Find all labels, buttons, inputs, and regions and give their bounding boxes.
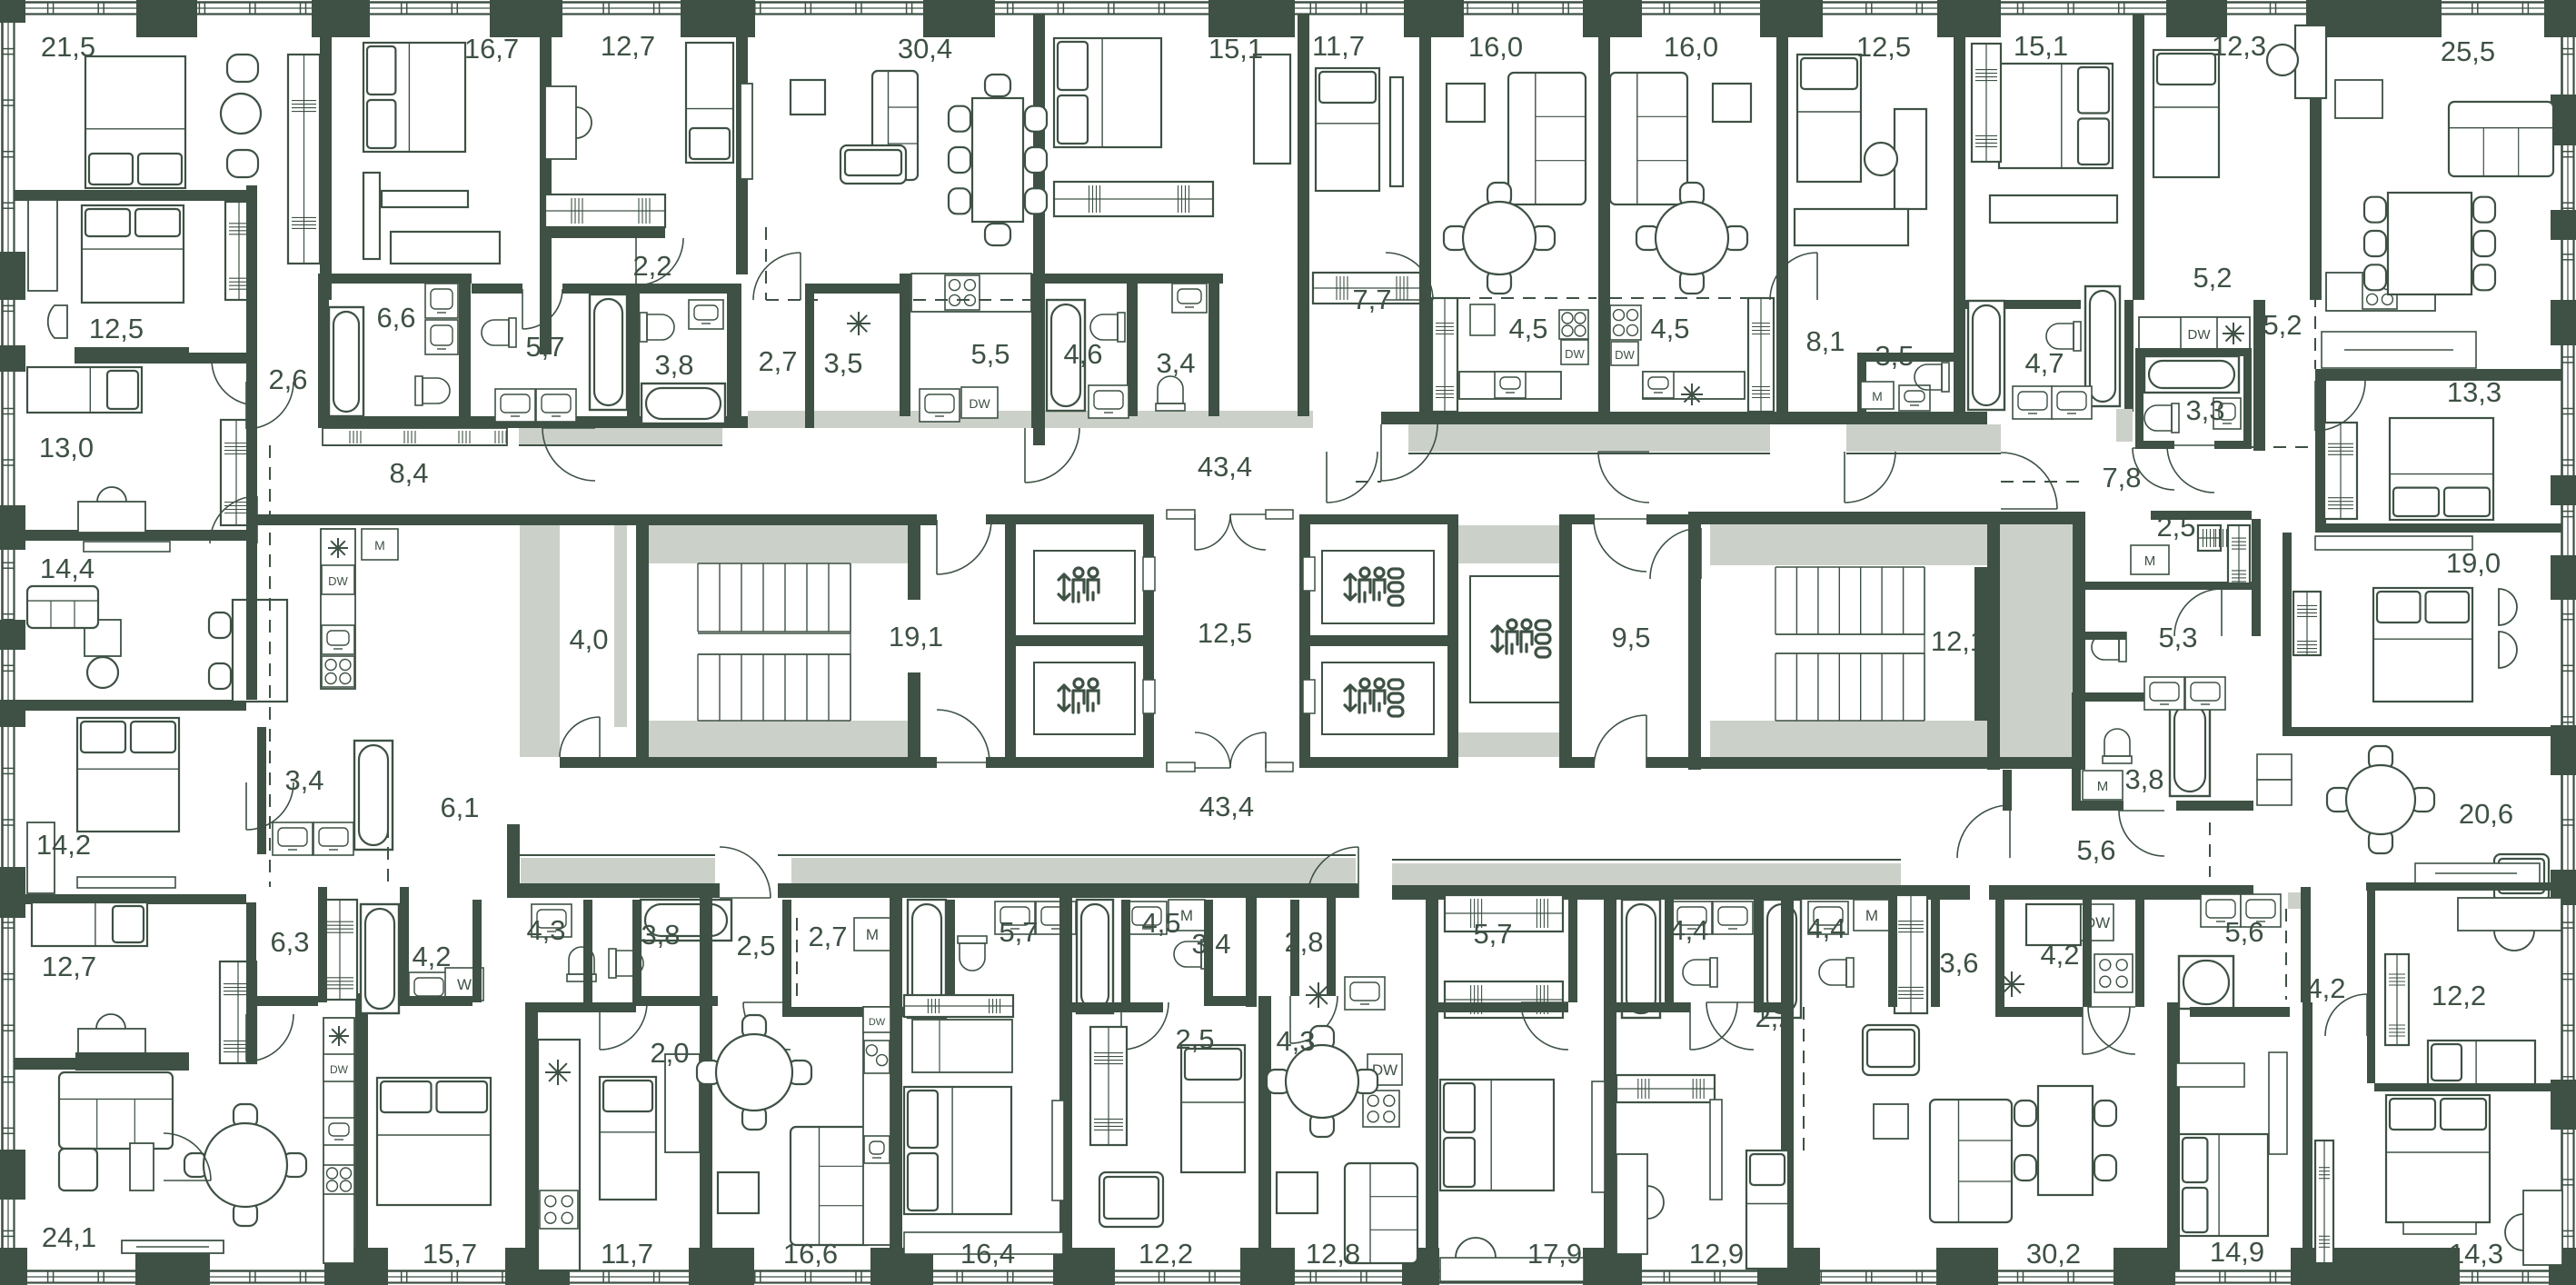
svg-text:13,0: 13,0 [39, 432, 94, 463]
svg-text:4,2: 4,2 [412, 941, 451, 972]
svg-text:3,8: 3,8 [641, 919, 680, 951]
svg-text:2,5: 2,5 [736, 930, 775, 961]
svg-text:M: M [2144, 553, 2156, 569]
svg-text:2,7: 2,7 [758, 345, 797, 377]
svg-text:3,4: 3,4 [284, 764, 323, 796]
svg-text:30,4: 30,4 [898, 33, 952, 65]
svg-text:3,8: 3,8 [2124, 763, 2163, 795]
svg-text:3,5: 3,5 [823, 347, 862, 379]
svg-text:DW: DW [2188, 327, 2212, 343]
svg-text:16,0: 16,0 [1468, 31, 1523, 63]
svg-text:8,1: 8,1 [1805, 325, 1845, 357]
svg-text:12,1: 12,1 [1931, 625, 1985, 657]
svg-text:3,6: 3,6 [1939, 947, 1978, 979]
svg-text:4,3: 4,3 [526, 914, 565, 946]
svg-text:M: M [1872, 389, 1883, 403]
svg-text:2,5: 2,5 [2156, 511, 2195, 543]
svg-text:6,6: 6,6 [376, 302, 415, 334]
svg-text:5,7: 5,7 [1473, 918, 1512, 950]
svg-text:12,5: 12,5 [89, 313, 144, 344]
svg-text:14,9: 14,9 [2210, 1236, 2264, 1268]
svg-text:12,7: 12,7 [601, 30, 655, 62]
svg-text:21,5: 21,5 [41, 31, 95, 63]
svg-text:M: M [374, 538, 385, 553]
svg-text:DW: DW [869, 1017, 886, 1028]
svg-text:4,5: 4,5 [1508, 313, 1547, 344]
svg-text:DW: DW [330, 1063, 349, 1076]
svg-text:4,2: 4,2 [2040, 939, 2079, 971]
svg-text:30,2: 30,2 [2026, 1238, 2081, 1270]
svg-text:4,4: 4,4 [1806, 912, 1845, 944]
svg-text:5,6: 5,6 [2076, 834, 2115, 866]
svg-text:3,4: 3,4 [1191, 928, 1230, 960]
svg-text:M: M [2097, 779, 2109, 794]
svg-text:7,7: 7,7 [1352, 284, 1391, 315]
svg-text:3,4: 3,4 [1156, 347, 1195, 379]
svg-text:5,2: 5,2 [2193, 262, 2232, 294]
svg-text:2,6: 2,6 [268, 364, 307, 395]
svg-text:12,5: 12,5 [1856, 31, 1911, 63]
svg-text:43,4: 43,4 [1198, 451, 1252, 483]
svg-text:4,5: 4,5 [1650, 313, 1689, 344]
svg-text:12,5: 12,5 [1198, 617, 1252, 649]
svg-text:2,5: 2,5 [1175, 1023, 1214, 1055]
svg-text:15,1: 15,1 [1208, 33, 1263, 65]
svg-text:DW: DW [969, 396, 990, 411]
svg-text:12,8: 12,8 [1306, 1238, 1360, 1270]
svg-text:2,2: 2,2 [632, 250, 671, 282]
svg-text:4,4: 4,4 [1669, 914, 1708, 946]
svg-text:17,9: 17,9 [1527, 1238, 1582, 1270]
svg-text:19,0: 19,0 [2446, 547, 2501, 579]
svg-text:M: M [1180, 907, 1193, 924]
svg-text:19,1: 19,1 [889, 621, 943, 652]
svg-text:4,7: 4,7 [2024, 347, 2064, 379]
svg-text:15,7: 15,7 [423, 1238, 477, 1270]
svg-text:5,5: 5,5 [970, 338, 1010, 370]
svg-text:24,1: 24,1 [42, 1221, 96, 1253]
svg-text:2,0: 2,0 [650, 1037, 689, 1069]
svg-text:6,1: 6,1 [440, 792, 479, 823]
svg-text:4,2: 4,2 [2306, 972, 2345, 1004]
svg-text:16,4: 16,4 [960, 1238, 1015, 1270]
svg-text:12,7: 12,7 [42, 951, 96, 982]
svg-text:4,6: 4,6 [1063, 338, 1102, 370]
svg-text:6,3: 6,3 [270, 926, 309, 958]
svg-text:20,6: 20,6 [2459, 798, 2513, 830]
svg-text:11,7: 11,7 [601, 1238, 653, 1270]
svg-text:4,5: 4,5 [1141, 907, 1180, 939]
svg-text:2,8: 2,8 [1284, 926, 1323, 958]
svg-text:16,7: 16,7 [464, 33, 519, 65]
svg-text:W: W [457, 976, 472, 993]
svg-text:16,6: 16,6 [783, 1238, 838, 1270]
svg-text:5,7: 5,7 [525, 331, 564, 363]
svg-text:2,2: 2,2 [1755, 1001, 1794, 1033]
svg-text:9,5: 9,5 [1611, 622, 1650, 653]
svg-text:16,0: 16,0 [1664, 31, 1718, 63]
svg-text:12,3: 12,3 [2212, 30, 2266, 62]
svg-text:12,9: 12,9 [1689, 1238, 1744, 1270]
svg-text:14,2: 14,2 [36, 829, 91, 861]
svg-text:15,1: 15,1 [2014, 30, 2068, 62]
svg-text:DW: DW [1615, 348, 1635, 362]
svg-text:14,4: 14,4 [40, 553, 94, 584]
svg-text:13,3: 13,3 [2447, 376, 2501, 408]
svg-text:2,7: 2,7 [808, 921, 847, 952]
svg-text:3,5: 3,5 [1875, 340, 1914, 372]
svg-text:M: M [1865, 907, 1878, 924]
svg-text:5,7: 5,7 [999, 916, 1038, 948]
svg-text:12,2: 12,2 [2432, 980, 2486, 1011]
svg-text:25,5: 25,5 [2441, 35, 2495, 67]
svg-text:11,7: 11,7 [1312, 30, 1365, 62]
svg-text:5,2: 5,2 [2263, 309, 2302, 341]
svg-text:7,8: 7,8 [2102, 462, 2141, 493]
svg-text:DW: DW [1565, 347, 1585, 361]
svg-text:3,8: 3,8 [654, 349, 693, 381]
svg-text:M: M [866, 926, 879, 943]
svg-text:5,6: 5,6 [2224, 916, 2263, 948]
svg-text:12,2: 12,2 [1139, 1238, 1193, 1270]
svg-text:4,3: 4,3 [1276, 1025, 1315, 1057]
svg-text:14,3: 14,3 [2449, 1238, 2503, 1270]
svg-text:43,4: 43,4 [1199, 791, 1254, 822]
svg-text:3,3: 3,3 [2185, 394, 2224, 426]
svg-text:8,4: 8,4 [389, 457, 428, 489]
svg-text:4,0: 4,0 [569, 623, 608, 655]
svg-text:DW: DW [328, 574, 348, 588]
svg-text:5,3: 5,3 [2158, 622, 2197, 653]
